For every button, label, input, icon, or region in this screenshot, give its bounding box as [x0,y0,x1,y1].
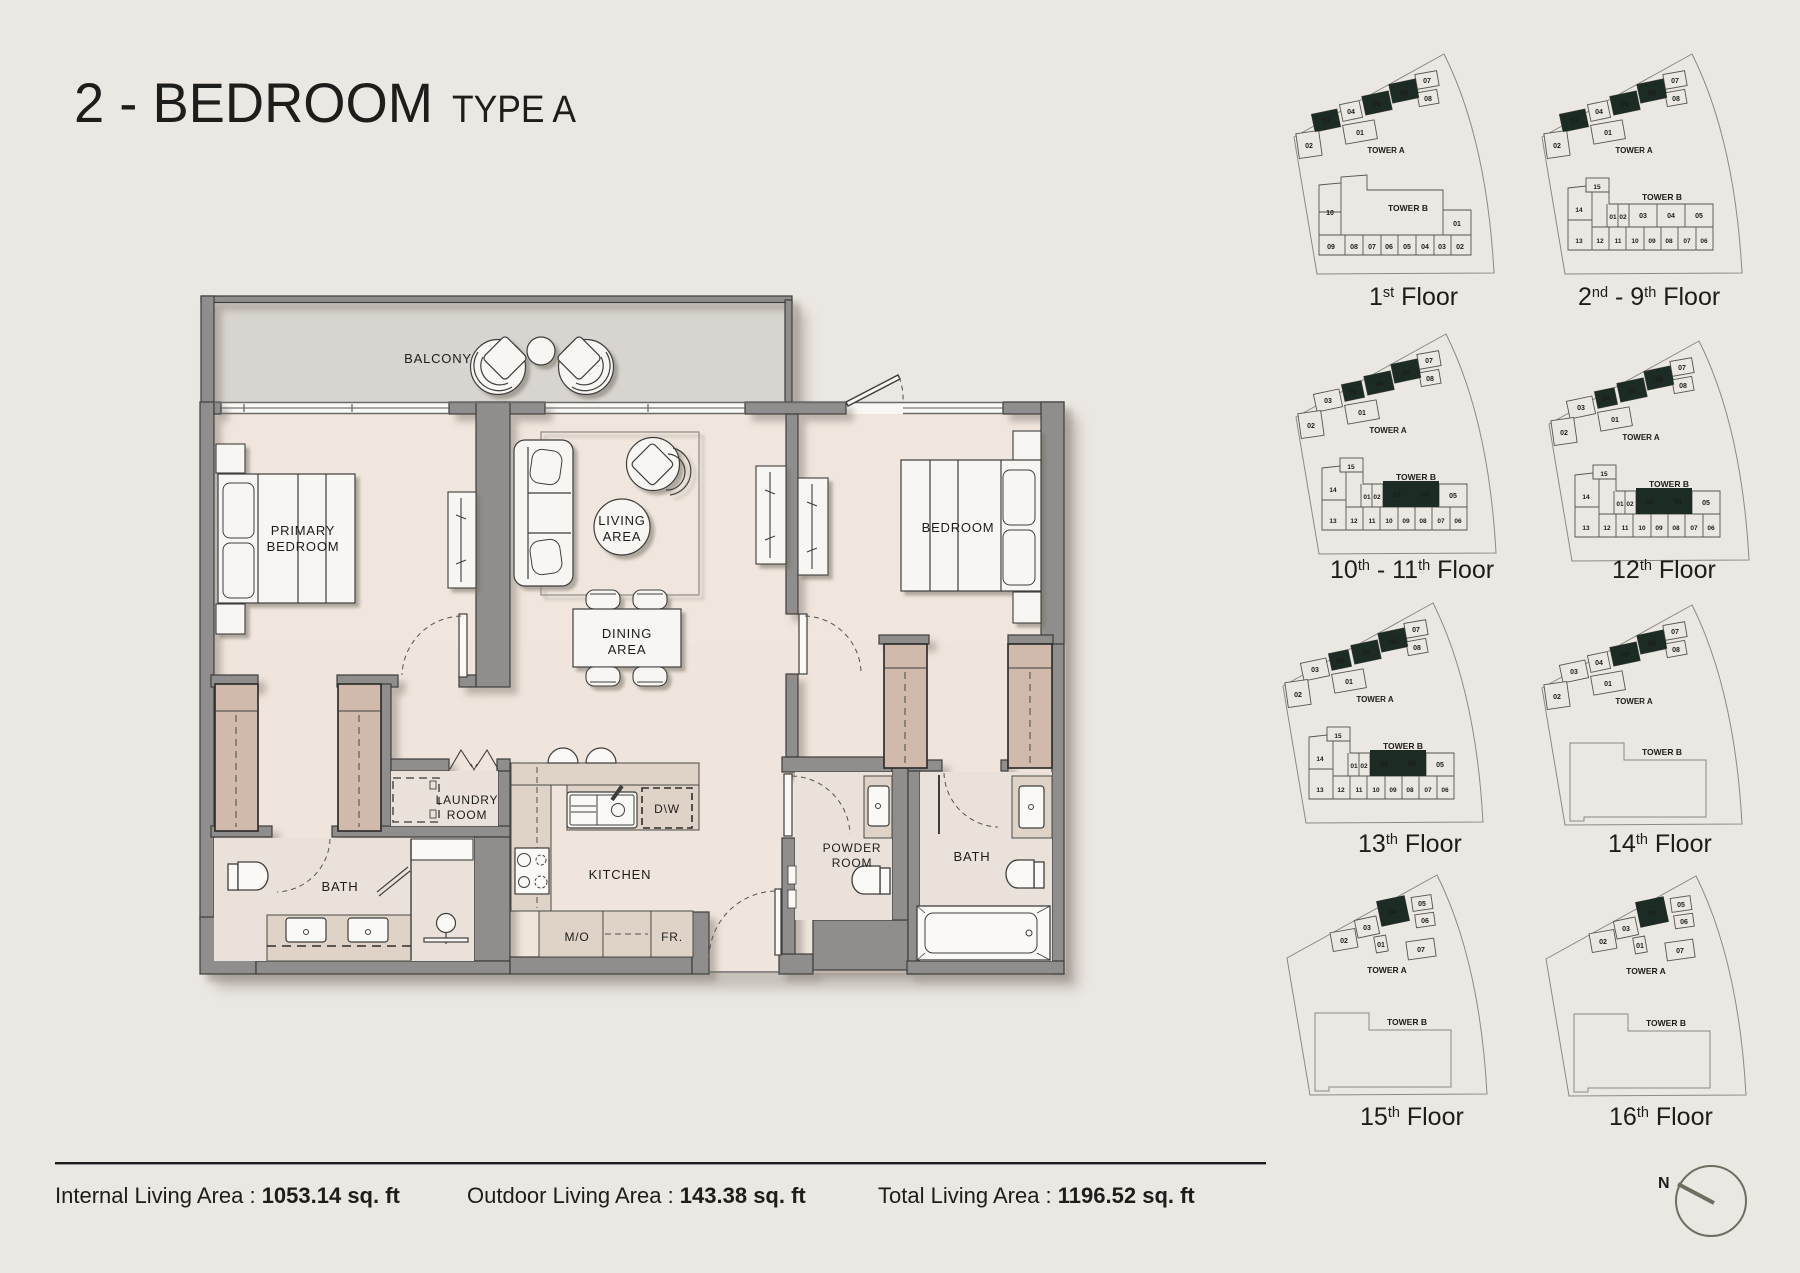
svg-text:BEDROOM: BEDROOM [267,539,340,554]
svg-text:2 - BEDROOM: 2 - BEDROOM [74,71,433,134]
svg-text:AREA: AREA [608,642,647,657]
svg-text:POWDER: POWDER [823,841,882,855]
svg-text:Outdoor Living Area : 143.38 s: Outdoor Living Area : 143.38 sq. ft [467,1183,806,1208]
svg-text:10th - 11th Floor: 10th - 11th Floor [1330,556,1494,584]
svg-text:BATH: BATH [954,849,991,864]
svg-text:N: N [1658,1175,1670,1192]
svg-text:D\W: D\W [654,802,680,816]
svg-text:LAUNDRY: LAUNDRY [436,793,499,807]
svg-text:LIVING: LIVING [598,513,645,528]
svg-text:ROOM: ROOM [447,808,488,822]
svg-text:BALCONY: BALCONY [404,351,472,366]
svg-text:AREA: AREA [603,529,642,544]
svg-text:DINING: DINING [602,626,652,641]
svg-text:BEDROOM: BEDROOM [922,520,995,535]
svg-text:Internal Living Area : 1053.14: Internal Living Area : 1053.14 sq. ft [55,1183,401,1208]
svg-text:12th Floor: 12th Floor [1612,556,1716,584]
svg-text:Total Living Area : 1196.52 sq: Total Living Area : 1196.52 sq. ft [878,1183,1195,1208]
svg-text:FR.: FR. [661,930,683,944]
svg-text:16th Floor: 16th Floor [1609,1103,1713,1131]
svg-text:15th Floor: 15th Floor [1360,1103,1464,1131]
svg-text:14th Floor: 14th Floor [1608,830,1712,858]
svg-text:M/O: M/O [564,930,589,944]
svg-text:BATH: BATH [322,879,359,894]
svg-text:KITCHEN: KITCHEN [589,867,652,882]
svg-text:PRIMARY: PRIMARY [271,523,336,538]
svg-text:1st Floor: 1st Floor [1369,283,1458,311]
svg-text:13th Floor: 13th Floor [1358,830,1462,858]
svg-text:ROOM: ROOM [832,856,873,870]
svg-text:TYPE A: TYPE A [452,89,577,131]
